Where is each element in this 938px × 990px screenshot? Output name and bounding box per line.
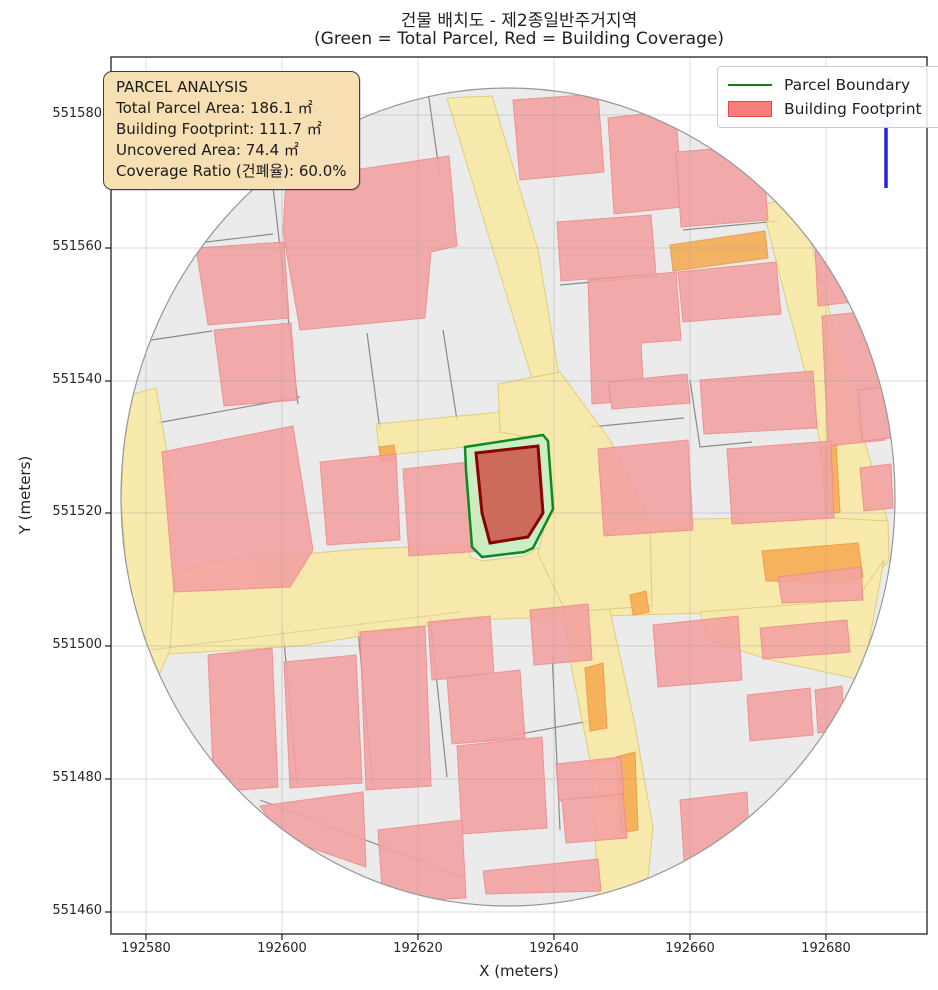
legend-item-parcel-boundary: Parcel Boundary <box>726 73 935 97</box>
building-polygon <box>815 686 844 733</box>
legend: Parcel Boundary Building Footprint <box>717 66 938 128</box>
x-tick-label: 192580 <box>101 941 191 956</box>
building-polygon <box>747 688 813 741</box>
subject-building-polygon <box>476 446 543 543</box>
orange-lot-polygon <box>630 591 649 615</box>
analysis-total-area: Total Parcel Area: 186.1 ㎡ <box>116 98 347 119</box>
y-axis-label: Y (meters) <box>16 440 34 550</box>
building-polygon <box>196 242 289 325</box>
building-polygon <box>727 441 834 524</box>
building-polygon <box>162 426 313 592</box>
x-tick-label: 192660 <box>645 941 735 956</box>
analysis-title: PARCEL ANALYSIS <box>116 77 347 98</box>
x-tick-label: 192620 <box>373 941 463 956</box>
y-tick-label: 551480 <box>26 770 102 785</box>
building-polygon <box>214 323 297 406</box>
x-axis-label: X (meters) <box>111 962 927 980</box>
building-polygon <box>360 626 431 790</box>
building-polygon <box>860 464 893 511</box>
figure: 건물 배치도 - 제2종일반주거지역 (Green = Total Parcel… <box>0 0 938 990</box>
x-tick-label: 192600 <box>237 941 327 956</box>
parcel-analysis-box: PARCEL ANALYSIS Total Parcel Area: 186.1… <box>103 71 360 190</box>
legend-line-sample-icon <box>726 84 774 86</box>
analysis-uncovered: Uncovered Area: 74.4 ㎡ <box>116 140 347 161</box>
legend-label: Building Footprint <box>784 100 922 118</box>
analysis-coverage-ratio: Coverage Ratio (건폐율): 60.0% <box>116 161 347 182</box>
building-polygon <box>208 648 278 792</box>
building-polygon <box>284 655 362 788</box>
legend-label: Parcel Boundary <box>784 76 910 94</box>
building-polygon <box>653 616 742 687</box>
building-polygon <box>447 670 525 744</box>
x-tick-label: 192680 <box>781 941 871 956</box>
building-polygon <box>457 737 547 834</box>
y-tick-label: 551560 <box>26 239 102 254</box>
legend-patch-sample-icon <box>726 101 774 117</box>
analysis-footprint: Building Footprint: 111.7 ㎡ <box>116 119 347 140</box>
building-polygon <box>530 604 592 665</box>
y-tick-label: 551520 <box>26 504 102 519</box>
building-polygon <box>428 616 494 680</box>
building-polygon <box>598 440 693 536</box>
building-polygon <box>815 240 853 306</box>
y-tick-label: 551500 <box>26 637 102 652</box>
building-polygon <box>562 794 627 843</box>
building-polygon <box>700 371 817 434</box>
y-tick-label: 551540 <box>26 372 102 387</box>
building-polygon <box>378 820 466 902</box>
building-polygon <box>320 454 400 545</box>
building-polygon <box>678 262 781 322</box>
legend-item-building-footprint: Building Footprint <box>726 97 935 121</box>
building-polygon <box>513 94 604 180</box>
building-polygon <box>858 386 891 441</box>
x-tick-label: 192640 <box>509 941 599 956</box>
y-tick-label: 551580 <box>26 106 102 121</box>
y-tick-label: 551460 <box>26 903 102 918</box>
